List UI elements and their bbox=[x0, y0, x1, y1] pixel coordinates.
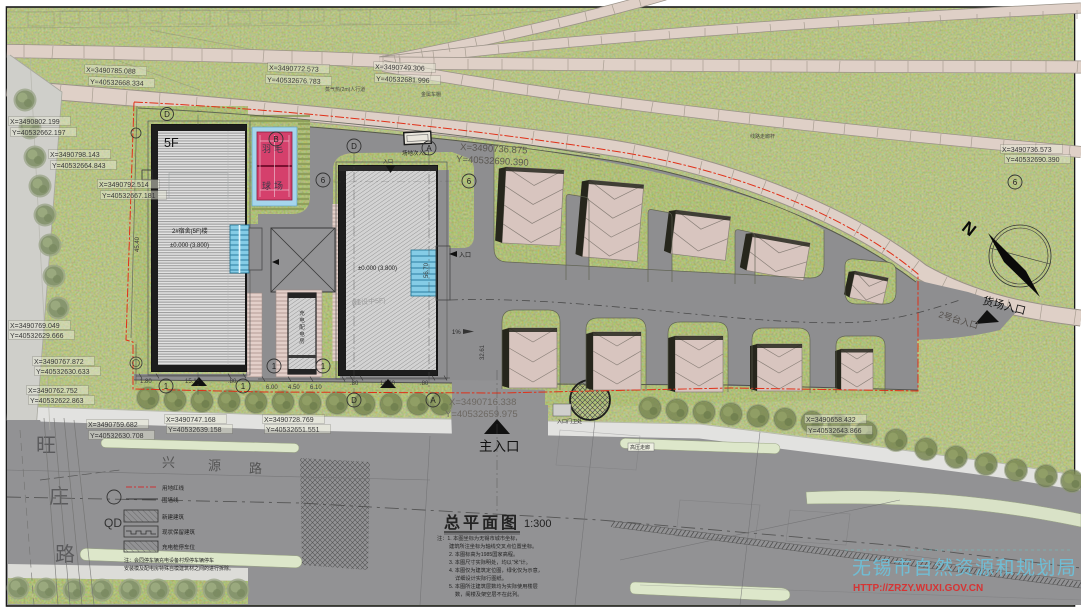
svg-text:高压走廊: 高压走廊 bbox=[630, 444, 650, 451]
svg-text:庄: 庄 bbox=[49, 485, 69, 508]
svg-text:D: D bbox=[164, 110, 170, 119]
svg-text:X=3490769.049: X=3490769.049 bbox=[10, 323, 60, 330]
svg-text:.80: .80 bbox=[228, 379, 237, 385]
svg-text:±0.000 (3.800): ±0.000 (3.800) bbox=[358, 266, 397, 272]
svg-text:羽毛: 羽毛 bbox=[262, 143, 286, 154]
svg-text:无锡市自然资源和规划局: 无锡市自然资源和规划局 bbox=[852, 557, 1078, 579]
svg-text:建筑所注坐标为轴线交叉点位置坐标。: 建筑所注坐标为轴线交叉点位置坐标。 bbox=[449, 542, 537, 550]
svg-text:X=3490802.199: X=3490802.199 bbox=[10, 119, 60, 126]
svg-text:X=3490792.514: X=3490792.514 bbox=[99, 182, 149, 189]
svg-text:1: 1 bbox=[272, 362, 277, 371]
svg-text:电: 电 bbox=[299, 316, 305, 324]
svg-text:5. 本图所注建筑层数均为实际使用楼层: 5. 本图所注建筑层数均为实际使用楼层 bbox=[449, 582, 538, 590]
svg-text:Y=40532630.633: Y=40532630.633 bbox=[36, 369, 90, 376]
svg-text:X=3490716.338: X=3490716.338 bbox=[449, 397, 516, 408]
svg-text:房: 房 bbox=[299, 337, 305, 345]
svg-text:2#宿舍(5F)楼: 2#宿舍(5F)楼 bbox=[172, 227, 208, 235]
svg-text:源: 源 bbox=[208, 458, 221, 473]
svg-text:5F: 5F bbox=[164, 136, 179, 150]
svg-text:入口: 入口 bbox=[459, 252, 471, 259]
svg-text:注：1. 本图坐标为无锡市城市坐标，: 注：1. 本图坐标为无锡市城市坐标， bbox=[437, 534, 521, 542]
svg-text:Y=40532662.197: Y=40532662.197 bbox=[12, 130, 66, 137]
svg-text:Y=40532639.158: Y=40532639.158 bbox=[168, 427, 222, 434]
svg-text:Y=40532659.975: Y=40532659.975 bbox=[445, 409, 518, 420]
svg-text:45.40: 45.40 bbox=[135, 236, 141, 252]
svg-text:X=3490728.769: X=3490728.769 bbox=[264, 417, 314, 424]
svg-text:围墙线: 围墙线 bbox=[162, 496, 179, 504]
svg-text:Y=40532651.551: Y=40532651.551 bbox=[266, 427, 320, 434]
svg-text:D: D bbox=[351, 142, 357, 151]
svg-text:球场: 球场 bbox=[262, 180, 286, 191]
svg-text:3. 本图尺寸实际明处，均以“米”计。: 3. 本图尺寸实际明处，均以“米”计。 bbox=[449, 558, 531, 566]
svg-text:6: 6 bbox=[1013, 178, 1018, 187]
svg-text:1: 1 bbox=[321, 362, 326, 371]
svg-text:新建建筑: 新建建筑 bbox=[162, 513, 185, 521]
svg-text:X=3490747.168: X=3490747.168 bbox=[166, 417, 216, 424]
svg-text:总平面图: 总平面图 bbox=[444, 513, 520, 532]
svg-text:4.50: 4.50 bbox=[288, 385, 300, 391]
svg-text:入口门卫处: 入口门卫处 bbox=[557, 418, 582, 425]
svg-text:1:300: 1:300 bbox=[524, 518, 552, 530]
svg-text:±0.000 (3.800): ±0.000 (3.800) bbox=[170, 243, 209, 249]
svg-text:1: 1 bbox=[164, 382, 169, 391]
svg-text:B: B bbox=[273, 135, 278, 144]
svg-text:金属车棚: 金属车棚 bbox=[421, 91, 441, 98]
svg-text:X=3490736.573: X=3490736.573 bbox=[1002, 147, 1052, 154]
svg-text:4. 本图仅为建筑定位图，绿化仅为示意，: 4. 本图仅为建筑定位图，绿化仅为示意， bbox=[449, 566, 543, 574]
svg-text:现状保留建筑: 现状保留建筑 bbox=[162, 528, 196, 536]
svg-text:X=3490798.143: X=3490798.143 bbox=[50, 152, 100, 159]
svg-text:D: D bbox=[351, 396, 357, 405]
svg-text:数，阁楼及架空层不在此列。: 数，阁楼及架空层不在此列。 bbox=[455, 590, 522, 598]
svg-text:1: 1 bbox=[241, 382, 246, 391]
svg-text:路: 路 bbox=[249, 461, 262, 476]
svg-text:主入口: 主入口 bbox=[479, 439, 520, 454]
svg-text:.80: .80 bbox=[420, 381, 429, 387]
svg-text:入口: 入口 bbox=[383, 159, 393, 165]
svg-text:32.61: 32.61 bbox=[480, 344, 486, 360]
svg-text:QD: QD bbox=[104, 516, 122, 530]
svg-text:A: A bbox=[430, 396, 436, 405]
svg-text:用地红线: 用地红线 bbox=[162, 484, 185, 492]
svg-text:充: 充 bbox=[299, 309, 305, 317]
svg-text:6: 6 bbox=[467, 177, 472, 186]
svg-text:X=3490767.872: X=3490767.872 bbox=[34, 359, 84, 366]
svg-text:安装模及配电房特殊自模建筑材之间的进行拆除。: 安装模及配电房特殊自模建筑材之间的进行拆除。 bbox=[124, 565, 234, 572]
svg-text:Y=40532622.863: Y=40532622.863 bbox=[30, 398, 84, 405]
svg-text:A: A bbox=[426, 144, 432, 153]
svg-text:HTTP://ZRZY.WUXI.GOV.CN: HTTP://ZRZY.WUXI.GOV.CN bbox=[853, 583, 983, 594]
svg-text:蒸气热(2m)人行道: 蒸气热(2m)人行道 bbox=[325, 86, 365, 93]
svg-text:X=3490658.432: X=3490658.432 bbox=[806, 417, 856, 424]
svg-text:电: 电 bbox=[299, 330, 305, 338]
svg-text:Y=40532667.181: Y=40532667.181 bbox=[102, 193, 156, 200]
svg-text:配: 配 bbox=[299, 324, 305, 331]
svg-text:详细设计实际行图纸。: 详细设计实际行图纸。 bbox=[455, 574, 507, 582]
svg-text:.80: .80 bbox=[350, 381, 359, 387]
svg-text:兴: 兴 bbox=[162, 455, 175, 470]
svg-text:6.00: 6.00 bbox=[266, 385, 278, 391]
svg-text:2. 本图标高为1985国家高程。: 2. 本图标高为1985国家高程。 bbox=[449, 550, 518, 558]
svg-text:1.80: 1.80 bbox=[140, 379, 152, 385]
svg-text:X=3490762.752: X=3490762.752 bbox=[28, 388, 78, 395]
svg-text:X=3490759.682: X=3490759.682 bbox=[88, 422, 138, 429]
svg-text:Y=40532643.866: Y=40532643.866 bbox=[808, 428, 862, 435]
svg-text:6: 6 bbox=[321, 176, 326, 185]
svg-text:充电桩停车位: 充电桩停车位 bbox=[162, 543, 196, 551]
svg-text:Y=40532629.666: Y=40532629.666 bbox=[10, 333, 64, 340]
svg-text:Y=40532664.843: Y=40532664.843 bbox=[52, 163, 106, 170]
svg-text:Y=40532690.390: Y=40532690.390 bbox=[1006, 157, 1060, 164]
svg-text:注：会同停车辆充电设备村规停车辆停车: 注：会同停车辆充电设备村规停车辆停车 bbox=[124, 557, 214, 564]
svg-text:6.10: 6.10 bbox=[310, 385, 322, 391]
svg-text:1%: 1% bbox=[452, 330, 461, 336]
svg-text:线路走廊杆: 线路走廊杆 bbox=[750, 133, 775, 140]
